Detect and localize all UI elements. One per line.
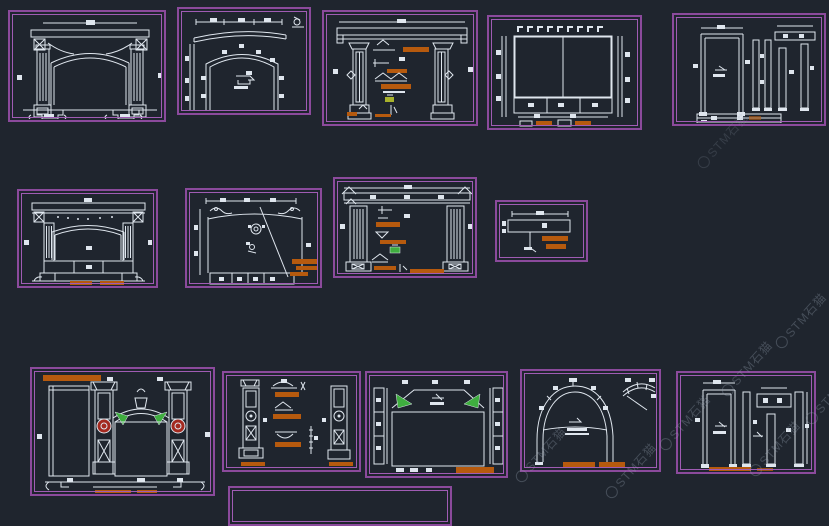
door-frame-profiles-b-drawing [683,378,813,471]
panel-door-frame-profiles-a[interactable] [672,13,826,126]
arch-dimension-detail-b-drawing [192,195,319,285]
door-frame-profiles-a-drawing [679,20,823,123]
panel-speckled-wall-panel[interactable] [487,15,642,130]
beam-detail-drawing [502,207,585,259]
panel-column-details[interactable] [222,371,361,472]
panel-partial-drawing-frame[interactable] [228,486,452,526]
panel-arch-dimension-detail-b[interactable] [185,188,322,288]
panel-frame-annotated-details-a[interactable] [322,10,478,126]
speckled-wall-panel-drawing [494,22,639,127]
frame-annotated-details-b-drawing [340,184,474,275]
panel-door-frame-profiles-b[interactable] [676,371,816,474]
watermark-logo-icon [695,153,712,170]
panel-ornate-gate-elevation[interactable] [30,367,215,496]
watermark-logo-icon [603,483,620,500]
arch-dimension-detail-a-drawing [184,14,308,112]
arch-detail-drawing [527,376,658,469]
panel-fireplace-elevation-b[interactable] [17,189,158,288]
panel-frame-annotated-details-b[interactable] [333,177,477,278]
panel-lattice-panel[interactable] [365,371,508,478]
panel-arch-dimension-detail-a[interactable] [177,7,311,115]
watermark-text: STM石猫 [781,289,829,341]
column-details-drawing [229,378,358,469]
panel-fireplace-elevation-a[interactable] [8,10,166,122]
panel-beam-detail[interactable] [495,200,588,262]
panel-arch-detail[interactable] [520,369,661,472]
fireplace-elevation-b-drawing [24,196,155,285]
watermark: STM石猫 [771,289,829,352]
cad-canvas[interactable]: { "canvas": {"background": "#1f252e"}, "… [0,0,829,490]
watermark-logo-icon [773,333,790,350]
ornate-gate-elevation-drawing [37,374,212,493]
lattice-panel-drawing [372,378,505,475]
frame-annotated-details-a-drawing [329,17,475,123]
fireplace-elevation-a-drawing [15,17,163,119]
